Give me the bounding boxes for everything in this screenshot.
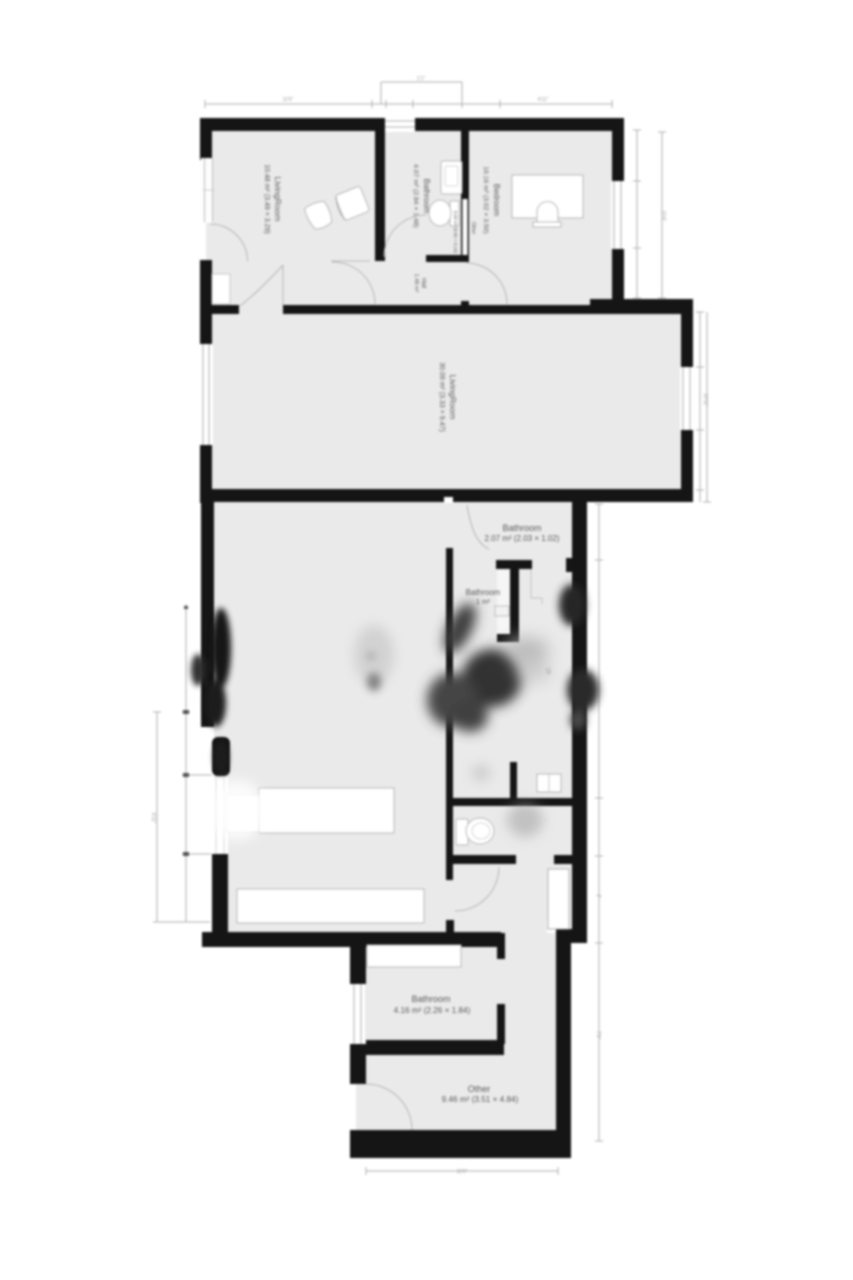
svg-text:Bedroom: Bedroom	[492, 184, 501, 217]
svg-text:Hall: Hall	[420, 278, 426, 288]
svg-text:Bathroom: Bathroom	[411, 994, 450, 1004]
svg-text:10.48 m² (3.49 × 3.29): 10.48 m² (3.49 × 3.29)	[263, 164, 270, 233]
svg-text:Bathroom: Bathroom	[422, 179, 431, 214]
svg-text:1.48 m²: 1.48 m²	[413, 274, 419, 293]
svg-text:2': 2'	[595, 894, 601, 898]
svg-text:1'1": 1'1"	[417, 76, 426, 82]
svg-text:4'11": 4'11"	[538, 97, 549, 103]
svg-text:4.07 m² (2.84 × 1.48): 4.07 m² (2.84 × 1.48)	[412, 164, 419, 228]
svg-text:11'5": 11'5"	[283, 97, 294, 103]
svg-text:30.09 m² (3.33 × 9.47): 30.09 m² (3.33 × 9.47)	[438, 362, 445, 431]
svg-text:1 m²: 1 m²	[476, 599, 491, 606]
svg-text:LivingRoom: LivingRoom	[448, 375, 458, 420]
svg-text:Bathroom: Bathroom	[466, 588, 501, 597]
svg-text:11'6": 11'6"	[660, 211, 666, 222]
svg-text:2.07 m² (2.03 × 1.02): 2.07 m² (2.03 × 1.02)	[485, 534, 560, 543]
svg-text:LivingRoom: LivingRoom	[273, 177, 283, 222]
svg-text:Other: Other	[470, 222, 476, 235]
svg-text:10.16 m² (3.02 × 3.50): 10.16 m² (3.02 × 3.50)	[482, 166, 489, 233]
svg-text:11'6": 11'6"	[457, 1169, 468, 1175]
svg-text:7'1": 7'1"	[595, 1031, 601, 1040]
svg-text:9.46 m² (3.51 × 4.84): 9.46 m² (3.51 × 4.84)	[442, 1095, 519, 1104]
svg-text:Other: Other	[468, 1084, 491, 1094]
svg-text:6'11": 6'11"	[150, 813, 156, 824]
svg-text:10'11": 10'11"	[702, 393, 708, 407]
svg-text:4.16 m² (2.26 × 1.84): 4.16 m² (2.26 × 1.84)	[394, 1006, 471, 1015]
svg-text:Bathroom: Bathroom	[502, 523, 541, 533]
svg-text:0.09 m² (0.55 × 0.16): 0.09 m² (0.55 × 0.16)	[453, 211, 458, 254]
